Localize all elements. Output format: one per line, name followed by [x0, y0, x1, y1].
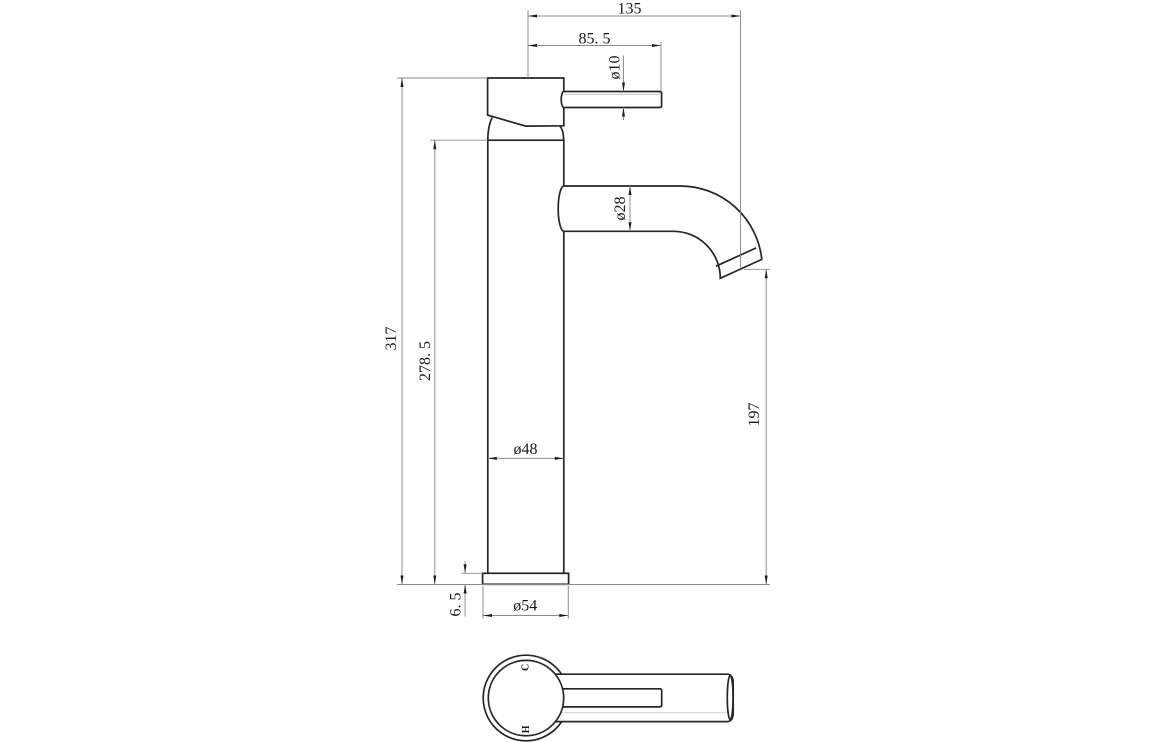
svg-text:ø48: ø48 [514, 441, 538, 458]
svg-text:135: 135 [618, 1, 642, 18]
svg-text:317: 317 [383, 327, 400, 351]
svg-text:ø28: ø28 [612, 197, 629, 221]
svg-text:H: H [521, 725, 532, 733]
svg-text:C: C [521, 664, 532, 671]
svg-text:197: 197 [746, 403, 763, 427]
svg-text:ø54: ø54 [513, 598, 537, 615]
svg-text:6. 5: 6. 5 [448, 593, 465, 617]
svg-text:85. 5: 85. 5 [579, 31, 611, 48]
svg-text:278. 5: 278. 5 [417, 341, 434, 381]
svg-text:ø10: ø10 [607, 56, 624, 80]
